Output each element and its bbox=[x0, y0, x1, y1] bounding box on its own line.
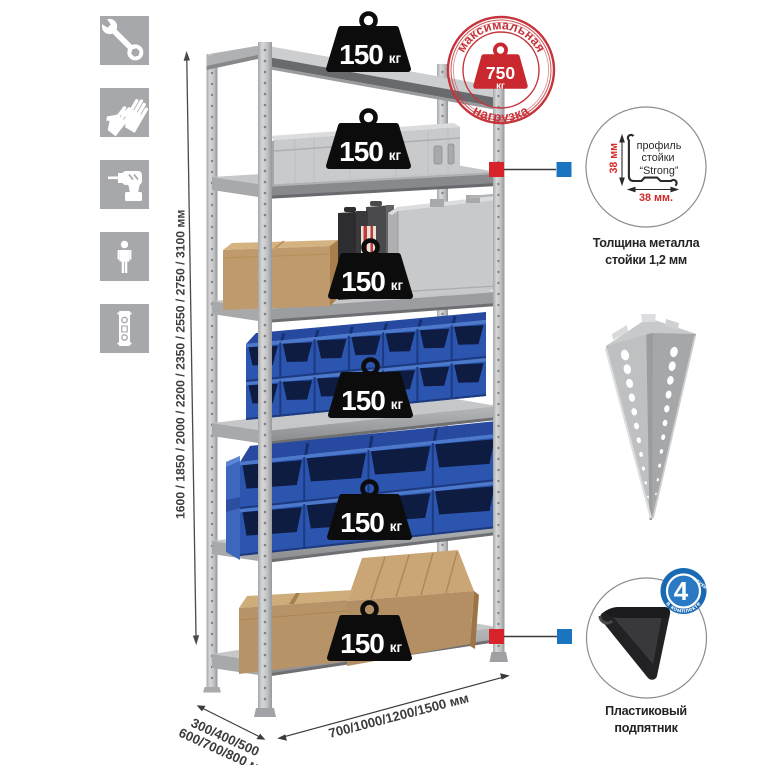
svg-text:максимальная: максимальная bbox=[454, 18, 548, 55]
svg-text:38 мм: 38 мм bbox=[608, 143, 620, 174]
svg-text:стойки 1,2 мм: стойки 1,2 мм bbox=[605, 253, 687, 267]
svg-text:Пластиковый: Пластиковый bbox=[605, 704, 687, 718]
svg-text:150: 150 bbox=[340, 628, 384, 659]
svg-text:Толщина металла: Толщина металла bbox=[593, 236, 701, 250]
svg-text:кг: кг bbox=[391, 397, 404, 412]
svg-text:кг: кг bbox=[390, 640, 403, 655]
svg-text:“Strong”: “Strong” bbox=[639, 165, 678, 177]
svg-text:150: 150 bbox=[339, 136, 383, 167]
svg-text:подпятник: подпятник bbox=[614, 721, 678, 735]
svg-text:4: 4 bbox=[674, 576, 689, 606]
svg-text:кг: кг bbox=[496, 81, 505, 92]
svg-text:150: 150 bbox=[339, 39, 383, 70]
svg-text:стойки: стойки bbox=[641, 152, 674, 164]
svg-text:700/1000/1200/1500 мм: 700/1000/1200/1500 мм bbox=[327, 690, 470, 741]
svg-text:150: 150 bbox=[341, 385, 385, 416]
svg-text:кг: кг bbox=[391, 278, 404, 293]
svg-text:кг: кг bbox=[389, 51, 402, 66]
svg-text:профиль: профиль bbox=[637, 140, 682, 152]
svg-text:кг: кг bbox=[390, 519, 403, 534]
svg-text:1600 / 1850 / 2000 / 2200 / 23: 1600 / 1850 / 2000 / 2200 / 2350 / 2550 … bbox=[174, 210, 188, 519]
svg-text:150: 150 bbox=[341, 266, 385, 297]
svg-text:150: 150 bbox=[340, 507, 384, 538]
svg-text:кг: кг bbox=[389, 148, 402, 163]
svg-text:38 мм.: 38 мм. bbox=[639, 192, 673, 204]
